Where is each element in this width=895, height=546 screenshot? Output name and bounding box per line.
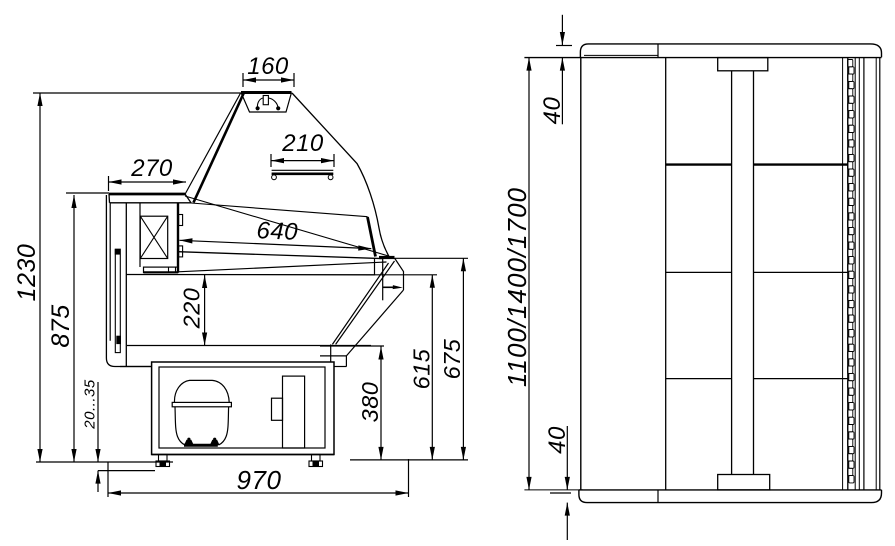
svg-text:40: 40: [539, 97, 566, 125]
svg-text:640: 640: [256, 217, 299, 246]
svg-text:210: 210: [281, 130, 324, 157]
svg-text:615: 615: [409, 348, 435, 389]
svg-text:970: 970: [237, 465, 282, 495]
svg-text:270: 270: [130, 155, 173, 182]
svg-text:380: 380: [357, 382, 383, 423]
svg-text:875: 875: [47, 304, 75, 347]
svg-text:1100/1400/1700: 1100/1400/1700: [502, 187, 532, 387]
svg-text:160: 160: [247, 53, 289, 80]
svg-text:20...35: 20...35: [82, 379, 99, 430]
svg-text:1230: 1230: [13, 244, 41, 302]
svg-text:220: 220: [179, 288, 205, 330]
svg-text:40: 40: [544, 426, 571, 454]
svg-text:675: 675: [439, 338, 465, 379]
